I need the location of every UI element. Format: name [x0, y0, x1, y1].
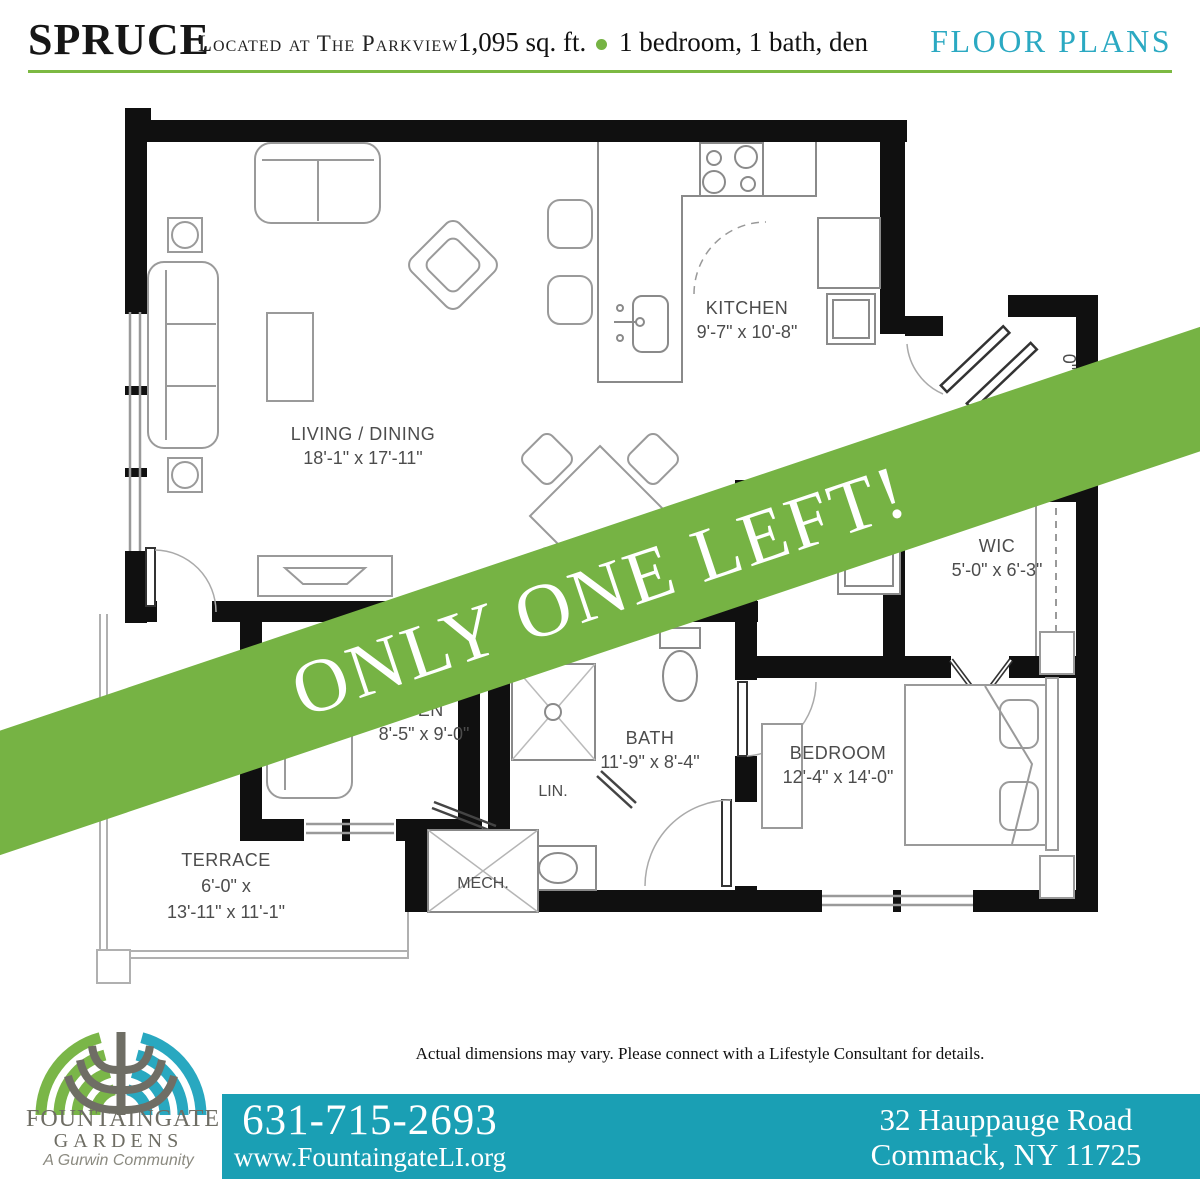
mech-room — [428, 830, 538, 912]
toilet-icon — [660, 628, 700, 701]
address-line2: Commack, NY 11725 — [856, 1138, 1156, 1173]
label-bath: BATH — [626, 728, 675, 748]
fountaingate-logo-icon — [26, 1018, 216, 1118]
logo-tagline: A Gurwin Community — [26, 1152, 211, 1170]
label-mech: MECH. — [457, 875, 509, 892]
coffee-table-icon — [267, 313, 313, 401]
console-table-icon — [258, 556, 392, 596]
armchair-icon — [405, 217, 501, 313]
kitchen-door-swing-icon — [694, 222, 766, 294]
label-bedroom: BEDROOM — [790, 743, 887, 763]
contact-bar: 631-715-2693 www.FountaingateLI.org 32 H… — [222, 1094, 1200, 1179]
linen-door-icon — [597, 771, 636, 808]
label-terrace: TERRACE — [181, 850, 271, 870]
stove-icon — [700, 143, 763, 196]
dims-bath: 11'-9" x 8'-4" — [600, 752, 699, 772]
dims-living: 18'-1" x 17'-11" — [303, 448, 422, 468]
bar-stool-icon — [548, 200, 592, 324]
dims-kitchen: 9'-7" x 10'-8" — [697, 322, 798, 342]
dims-terrace-2: 13'-11" x 11'-1" — [167, 902, 285, 922]
label-wic: WIC — [979, 536, 1016, 556]
dims-wic: 5'-0" x 6'-3" — [952, 560, 1043, 580]
loveseat — [148, 262, 218, 448]
label-living: LIVING / DINING — [291, 424, 436, 444]
logo-name-line1: FOUNTAINGATE — [26, 1106, 211, 1133]
logo-name-line2: GARDENS — [26, 1130, 211, 1153]
bath-door-icon — [645, 800, 731, 886]
bed-icon — [905, 678, 1058, 850]
sofa — [255, 143, 380, 223]
window-left-icon — [130, 312, 140, 551]
phone-number: 631-715-2693 — [222, 1097, 518, 1144]
fridge-icon — [818, 218, 880, 344]
disclaimer-text: Actual dimensions may vary. Please conne… — [350, 1044, 1050, 1064]
dims-bedroom: 12'-4" x 14'-0" — [783, 767, 894, 787]
dims-terrace-1: 6'-0" x — [201, 876, 251, 896]
address-line1: 32 Hauppauge Road — [856, 1103, 1156, 1138]
flyer-page: SPRUCE Located at The Parkview 1,095 sq.… — [0, 0, 1200, 1200]
label-linen: LIN. — [538, 783, 567, 800]
website-url: www.FountaingateLI.org — [222, 1142, 518, 1173]
label-kitchen: KITCHEN — [706, 298, 789, 318]
dims-den: 8'-5" x 9'-0" — [379, 724, 470, 744]
